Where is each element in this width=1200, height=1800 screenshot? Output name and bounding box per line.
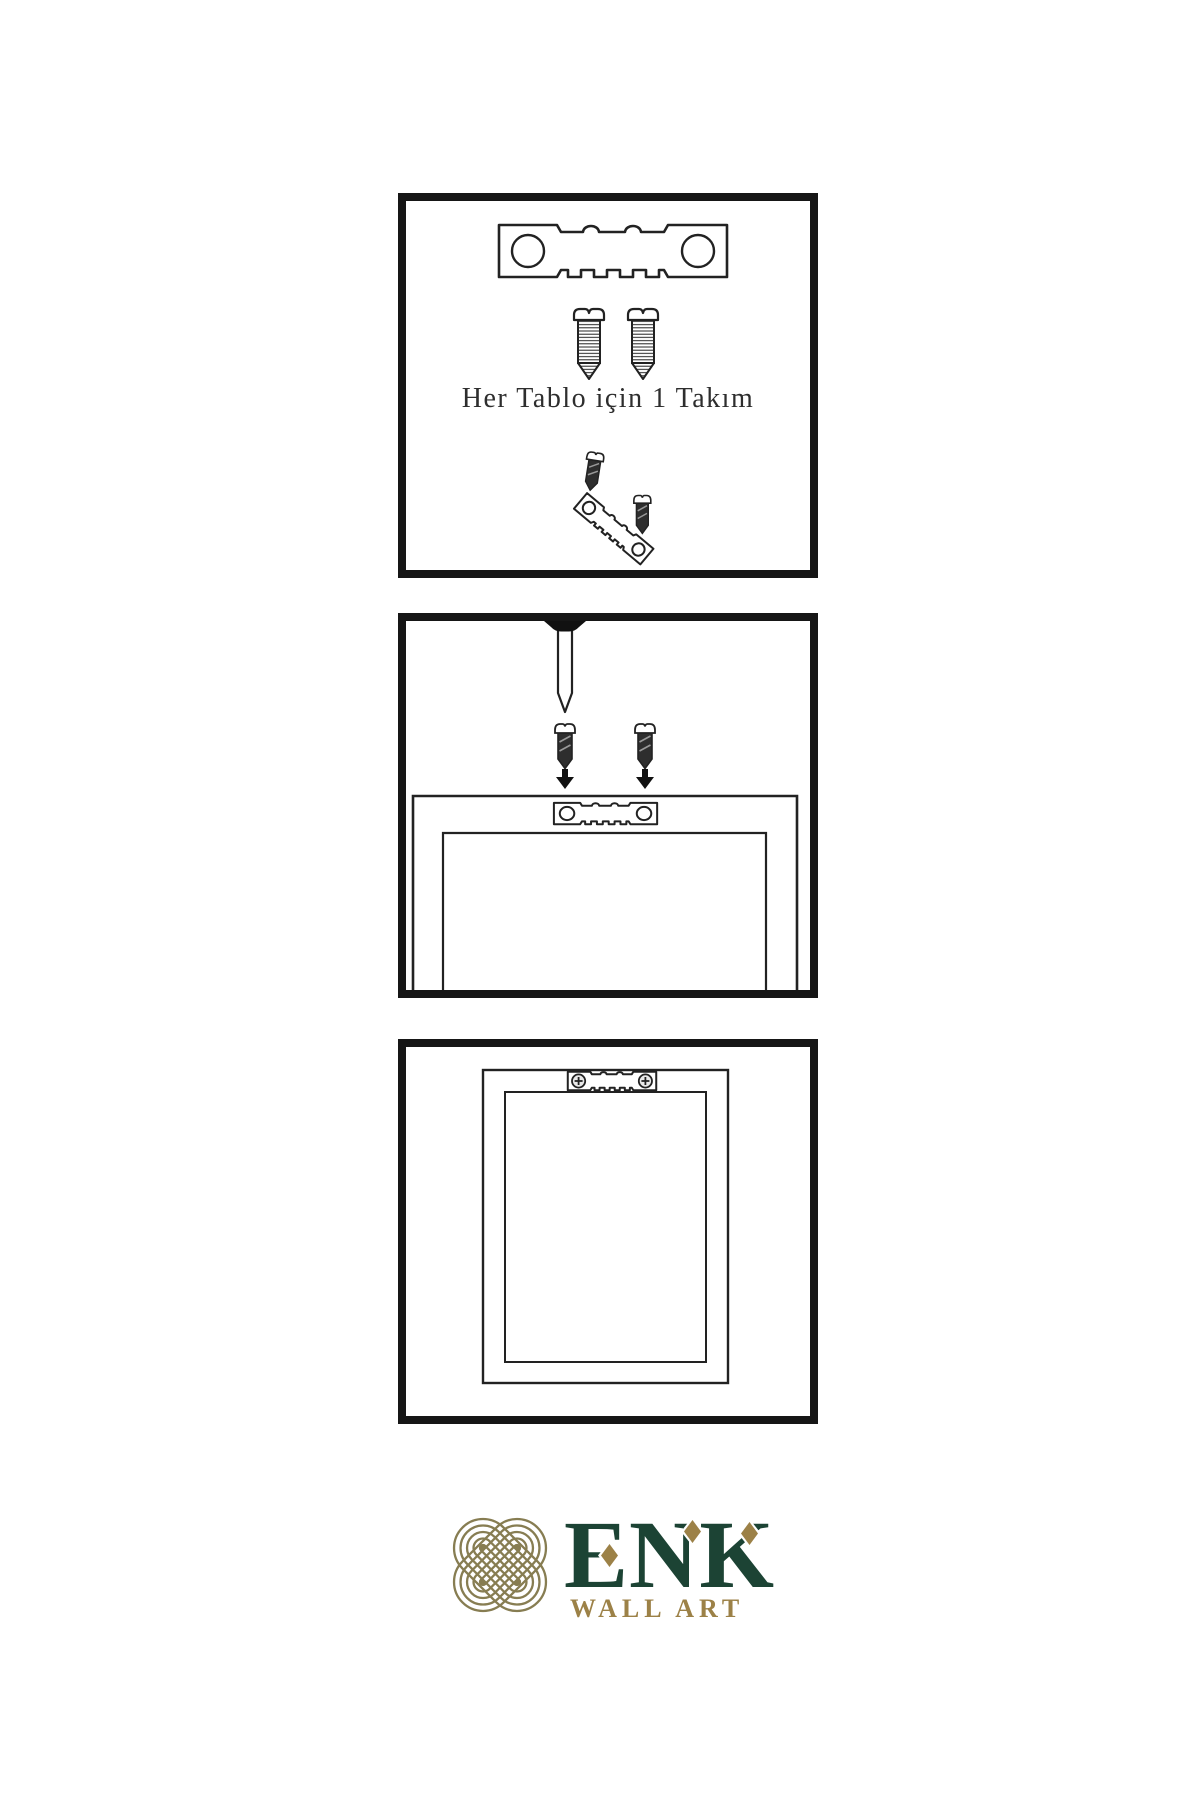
- step-3-illustration: [406, 1047, 810, 1416]
- step-2-illustration: [406, 621, 810, 990]
- screw-icon: [635, 724, 655, 769]
- brand-logo: ENK WALL ART: [430, 1490, 810, 1680]
- frame-back-icon: [483, 1070, 728, 1383]
- phillips-screw-head-icon: [572, 1074, 585, 1087]
- step-1-caption: Her Tablo için 1 Takım: [406, 383, 810, 415]
- frame-back-with-sawtooth-hanger-icon: [413, 796, 797, 990]
- sawtooth-hanger-icon: [554, 803, 657, 824]
- step-1-panel: Her Tablo için 1 Takım: [398, 193, 818, 578]
- interlocking-knot-icon: [440, 1503, 560, 1627]
- screw-icon: [555, 724, 575, 769]
- step-3-panel: [398, 1039, 818, 1424]
- nail-in-wall-icon: [544, 621, 586, 712]
- screw-icon: [628, 309, 658, 379]
- screw-icon: [634, 496, 651, 534]
- sawtooth-hanger-icon: [499, 225, 727, 277]
- tilted-hanger-with-screws-icon: [574, 451, 653, 564]
- brand-subtitle: WALL ART: [570, 1593, 744, 1624]
- mounted-sawtooth-hanger-icon: [568, 1072, 656, 1091]
- phillips-screw-head-icon: [639, 1074, 652, 1087]
- brand-name: ENK: [564, 1502, 775, 1608]
- step-2-panel: [398, 613, 818, 998]
- screw-icon: [574, 309, 604, 379]
- arrow-down-icon: [636, 769, 654, 789]
- arrow-down-icon: [556, 769, 574, 789]
- screw-icon: [582, 451, 605, 491]
